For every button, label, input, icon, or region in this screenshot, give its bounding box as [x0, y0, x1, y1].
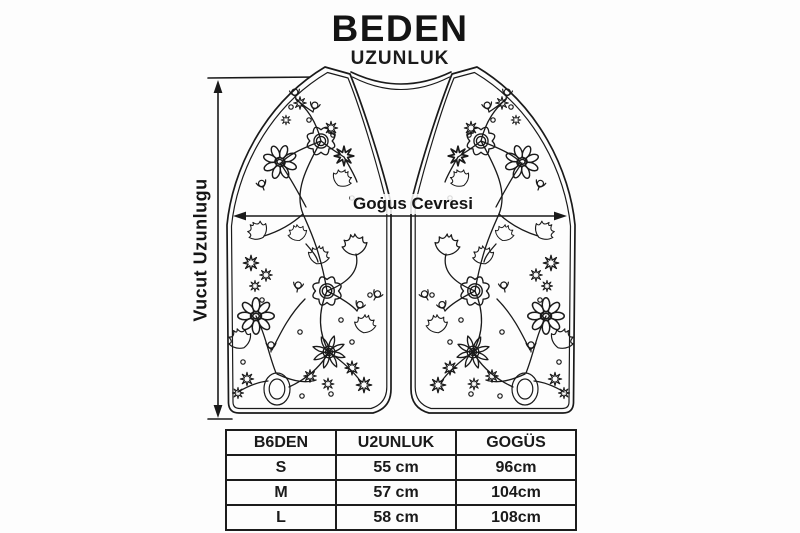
- size-cell: M: [226, 480, 336, 505]
- table-row: S 55 cm 96cm: [226, 455, 576, 480]
- col-header-chest: GOGÜS: [456, 430, 576, 455]
- size-table-header-row: B6DEN U2UNLUK GOGÜS: [226, 430, 576, 455]
- body-length-label: Vucut Uzunlugu: [191, 178, 212, 321]
- chest-cell: 108cm: [456, 505, 576, 530]
- size-cell: L: [226, 505, 336, 530]
- table-row: M 57 cm 104cm: [226, 480, 576, 505]
- table-row: L 58 cm 108cm: [226, 505, 576, 530]
- size-chart-page: BEDEN UZUNLUK: [0, 0, 800, 533]
- size-cell: S: [226, 455, 336, 480]
- col-header-size: B6DEN: [226, 430, 336, 455]
- back-neckline: [351, 72, 451, 84]
- col-header-length: U2UNLUK: [336, 430, 456, 455]
- size-table: B6DEN U2UNLUK GOGÜS S 55 cm 96cm M 57 cm…: [225, 429, 577, 531]
- vest-outline: [227, 67, 575, 413]
- chest-cell: 104cm: [456, 480, 576, 505]
- length-cell: 58 cm: [336, 505, 456, 530]
- length-cell: 55 cm: [336, 455, 456, 480]
- chest-cell: 96cm: [456, 455, 576, 480]
- chest-measure-label: Goġus Cevresi: [350, 194, 476, 214]
- length-cell: 57 cm: [336, 480, 456, 505]
